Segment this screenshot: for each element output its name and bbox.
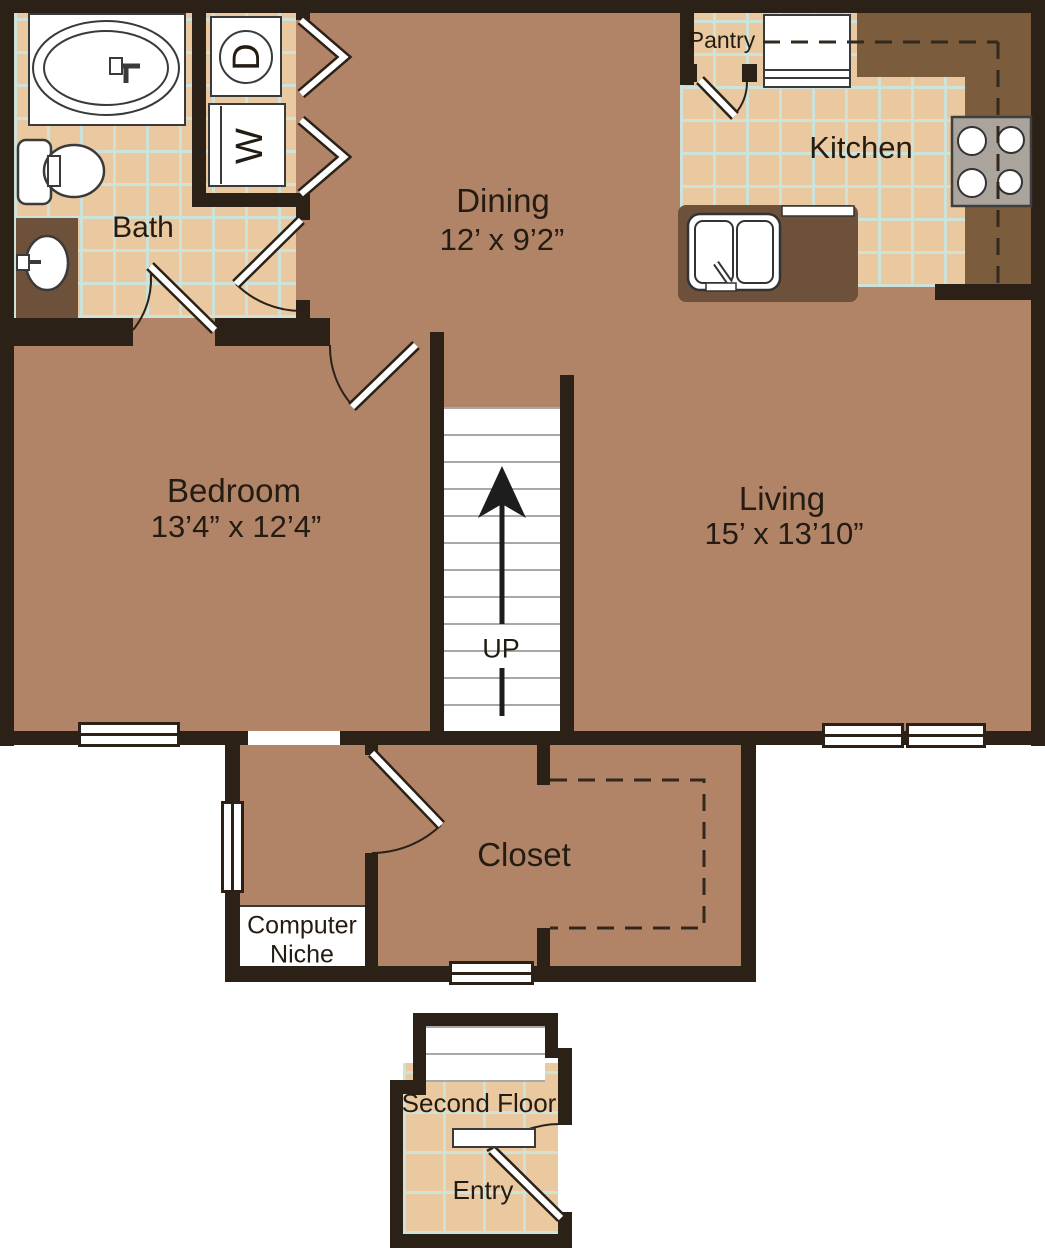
bedroom-dims: 13’4” x 12’4”: [151, 509, 322, 545]
window-icon: [221, 801, 244, 893]
second-floor-label: Second Floor: [402, 1089, 557, 1119]
kitchen-sink-icon: [688, 214, 780, 291]
window-icon: [822, 723, 904, 748]
floor-plan: D W: [0, 0, 1045, 1254]
living-label: Living: [739, 480, 825, 518]
dining-dims: 12’ x 9’2”: [440, 222, 565, 258]
window-icon: [78, 722, 180, 747]
window-icon: [906, 723, 986, 748]
bifold-door-icon: [301, 20, 344, 194]
bath-label: Bath: [112, 211, 174, 246]
stairs-up-arrow-icon: [478, 466, 526, 716]
dishwasher-icon: [782, 206, 854, 216]
bathtub-icon: [33, 21, 179, 115]
toilet-icon: [18, 140, 104, 204]
closet-label: Closet: [477, 836, 571, 874]
washer-label: W: [229, 128, 271, 164]
kitchen-label: Kitchen: [809, 130, 912, 166]
entry-label: Entry: [453, 1176, 514, 1206]
vanity-sink-icon: [17, 236, 68, 290]
entry-inner-door: [452, 1128, 536, 1148]
closet-rod-dashed-icon: [550, 780, 704, 928]
washer-icon: W: [221, 106, 271, 184]
living-dims: 15’ x 13’10”: [704, 516, 863, 552]
dryer-icon: D: [220, 31, 272, 83]
window-icon: [449, 961, 534, 985]
stove-icon: [952, 117, 1031, 206]
bedroom-label: Bedroom: [167, 472, 301, 510]
refrigerator-icon: [765, 70, 849, 78]
dryer-label: D: [226, 43, 268, 70]
stairs-up-label: UP: [482, 633, 520, 664]
pantry-label: Pantry: [689, 27, 755, 53]
dining-label: Dining: [456, 182, 550, 220]
computer-niche-label: Computer Niche: [227, 911, 377, 969]
